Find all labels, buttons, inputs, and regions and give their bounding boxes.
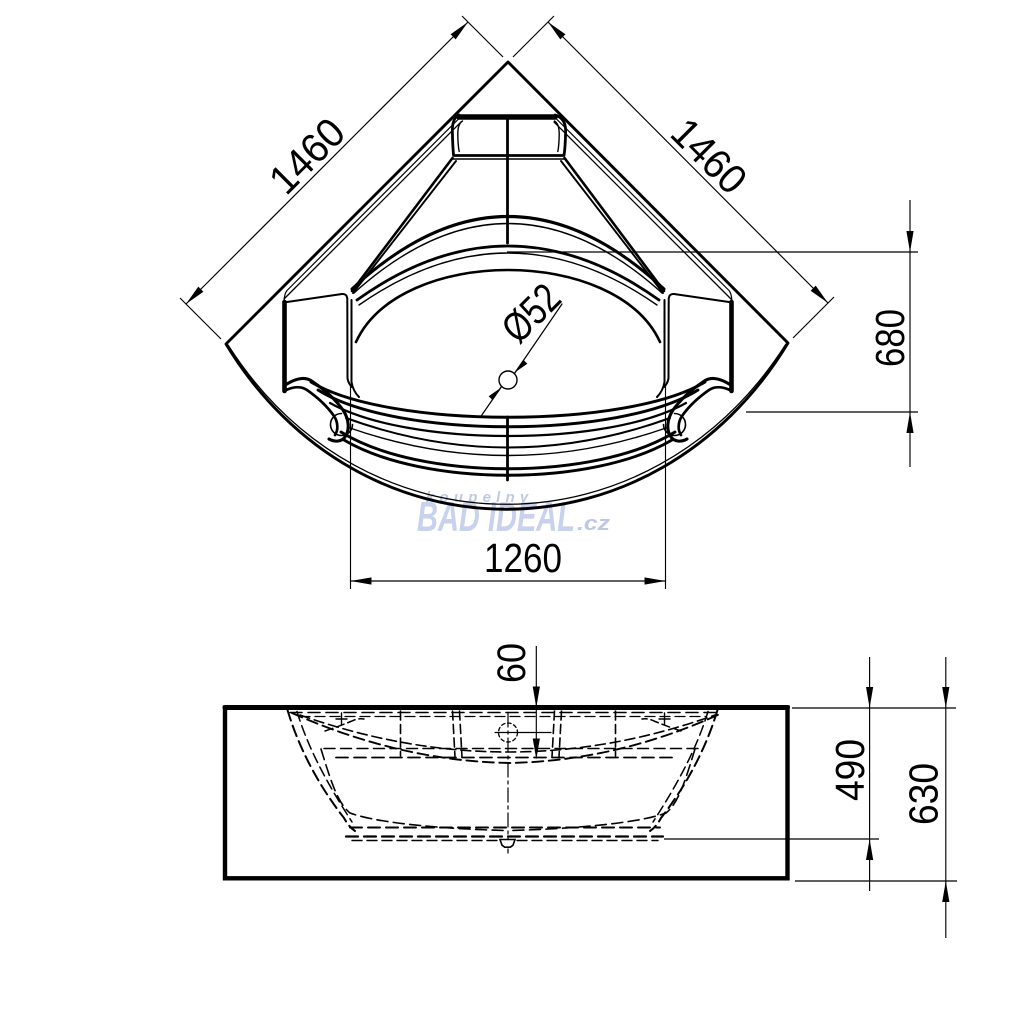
svg-text:1260: 1260	[484, 535, 562, 581]
svg-text:.cz: .cz	[577, 513, 610, 535]
svg-text:60: 60	[490, 643, 534, 683]
svg-text:630: 630	[901, 763, 947, 825]
svg-text:BAD IDEAL: BAD IDEAL	[417, 493, 575, 540]
svg-text:490: 490	[827, 739, 873, 801]
svg-text:680: 680	[867, 309, 913, 367]
